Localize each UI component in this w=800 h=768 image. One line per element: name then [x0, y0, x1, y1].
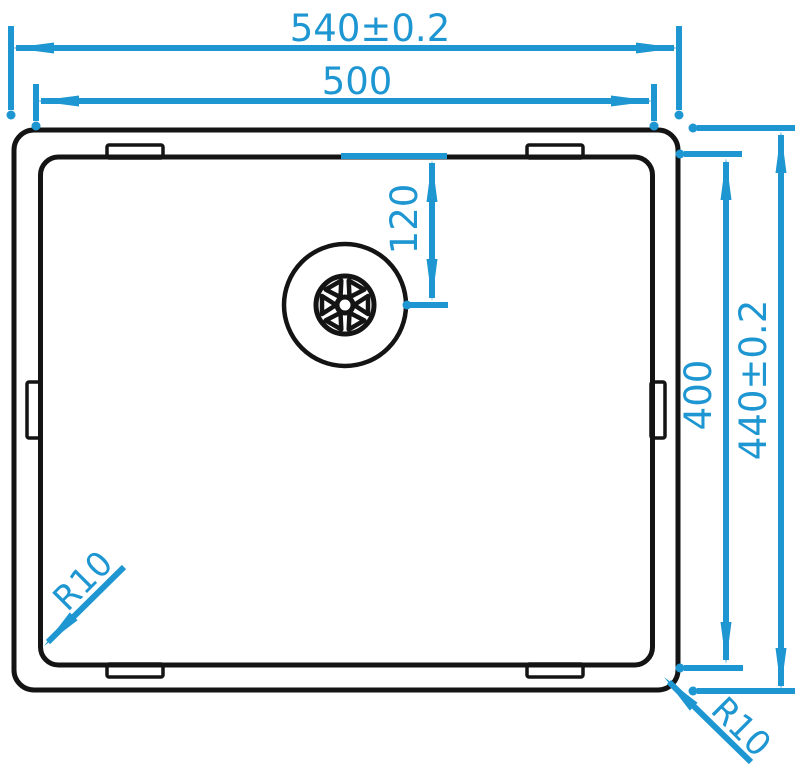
- dim-drain-offset-label: 120: [383, 184, 426, 255]
- strainer-holes: [322, 281, 368, 330]
- extension-origin-dot: [689, 687, 698, 696]
- arrowhead-right: [611, 96, 653, 107]
- extension-origin-dot: [676, 150, 685, 159]
- arrowhead-down: [721, 622, 732, 664]
- extension-origin-dot: [689, 124, 698, 133]
- drain-assembly: [284, 244, 406, 366]
- sink-outer-rim: [14, 130, 678, 690]
- sink-bowl-edge: [41, 157, 653, 665]
- drain-outer-circle: [284, 244, 406, 366]
- strainer-center-hole: [337, 297, 353, 313]
- extension-origin-dot: [675, 111, 684, 120]
- drawing-canvas: 540±0.2 500 120 400: [0, 0, 800, 768]
- extension-origin-dot: [403, 301, 412, 310]
- dim-outer-height-label: 440±0.2: [732, 300, 775, 460]
- extension-origin-dot: [676, 664, 685, 673]
- extension-origin-dot: [7, 111, 16, 120]
- arrowhead-left: [12, 43, 54, 54]
- rim-corner-radius-label: R10: [703, 689, 779, 765]
- radius-callout-rim: R10: [660, 673, 778, 765]
- arrowhead-up: [721, 158, 732, 200]
- sink-technical-drawing: 540±0.2 500 120 400: [0, 0, 800, 768]
- dim-inner-width: 500: [32, 60, 659, 131]
- extension-origin-dot: [32, 122, 41, 131]
- dim-inner-height-label: 400: [677, 360, 720, 431]
- extension-origin-dot: [650, 122, 659, 131]
- dim-outer-width-label: 540±0.2: [290, 7, 450, 50]
- arrowhead-left: [37, 96, 79, 107]
- arrowhead-down: [427, 259, 438, 301]
- sink-body: [14, 130, 678, 690]
- dim-inner-width-label: 500: [322, 60, 393, 103]
- arrowhead-right: [636, 43, 678, 54]
- arrowhead-up: [427, 160, 438, 202]
- bowl-corner-radius-label: R10: [45, 543, 121, 619]
- radius-callout-bowl: R10: [40, 543, 124, 649]
- arrowhead-down: [776, 648, 787, 690]
- arrowhead-up: [776, 131, 787, 173]
